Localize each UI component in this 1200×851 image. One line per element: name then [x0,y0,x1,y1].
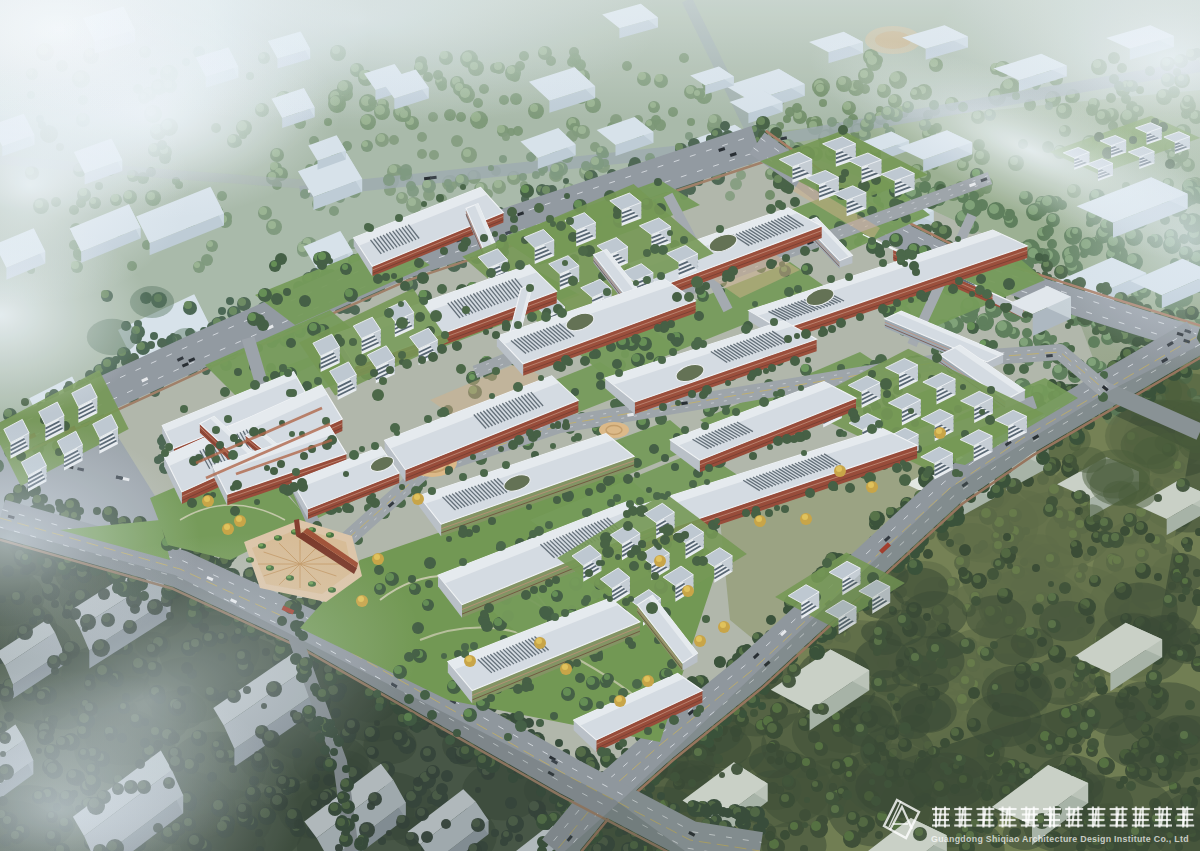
svg-text:Guangdong Shiqiao Architecture: Guangdong Shiqiao Architecture Design In… [931,834,1189,844]
